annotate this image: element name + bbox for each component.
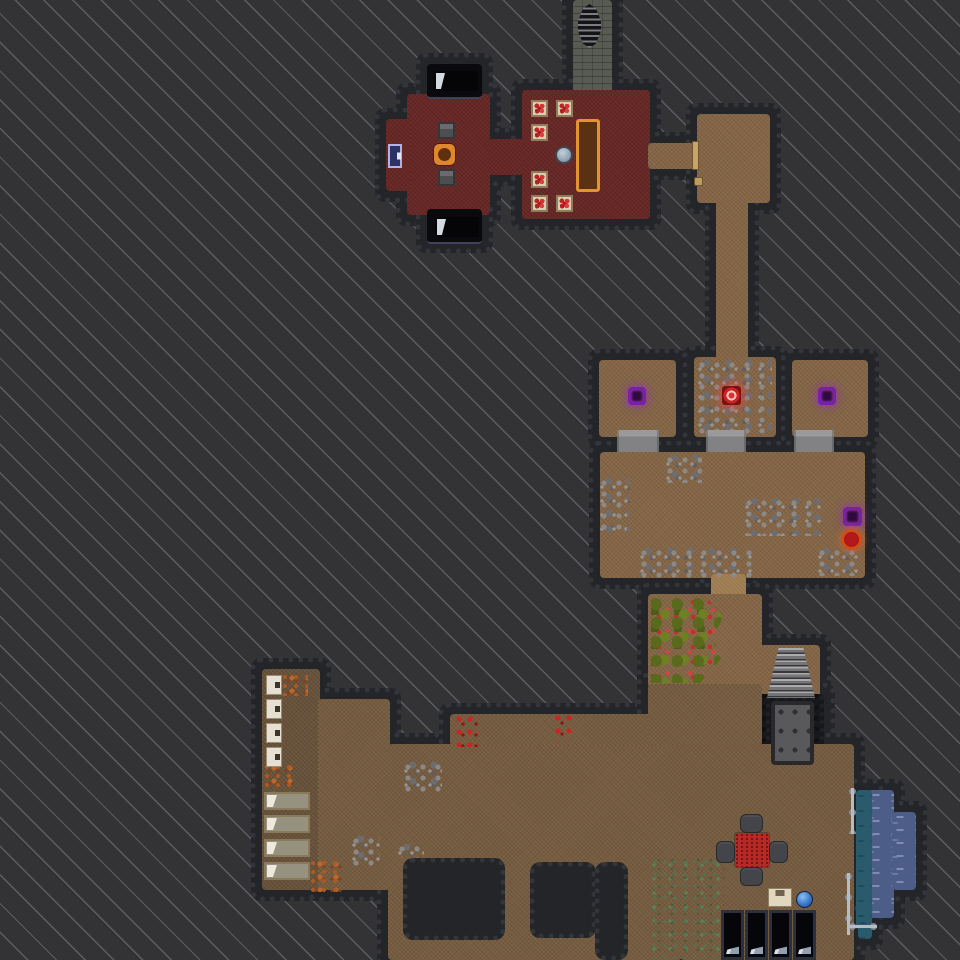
dining-table-4[interactable] — [531, 171, 548, 188]
white-chest-2[interactable] — [266, 699, 282, 719]
dining-table-3[interactable] — [531, 124, 548, 141]
purple-rune-west[interactable] — [628, 387, 646, 405]
dining-table-5[interactable] — [531, 195, 548, 212]
dungeon-map — [0, 0, 960, 960]
railing-foot — [849, 923, 877, 930]
dorm-bed-2[interactable] — [264, 815, 310, 833]
display-case-3[interactable] — [769, 910, 792, 960]
white-chest-4[interactable] — [266, 747, 282, 767]
tavern-bed-north[interactable] — [434, 71, 478, 91]
pool-grate[interactable] — [771, 701, 814, 765]
items-layer — [0, 0, 960, 960]
hall-red-orb[interactable] — [841, 529, 862, 550]
tavern-chair-south[interactable] — [438, 169, 455, 186]
supply-crate[interactable] — [768, 888, 792, 907]
ramp-middle — [706, 430, 746, 452]
cauldron[interactable] — [555, 146, 573, 164]
white-chest-3[interactable] — [266, 723, 282, 743]
feast-table[interactable] — [735, 833, 769, 867]
feast-chair-west[interactable] — [716, 841, 735, 863]
tavern-door-west[interactable] — [388, 144, 402, 168]
feast-chair-east[interactable] — [769, 841, 788, 863]
feast-chair-south[interactable] — [740, 867, 763, 886]
dorm-bed-3[interactable] — [264, 839, 310, 857]
dorm-bed-1[interactable] — [264, 792, 310, 810]
ramp-west — [617, 430, 659, 452]
dining-table-1[interactable] — [531, 100, 548, 117]
white-chest-1[interactable] — [266, 675, 282, 695]
display-case-4[interactable] — [793, 910, 816, 960]
dining-table-2[interactable] — [556, 100, 573, 117]
tavern-chair-north[interactable] — [438, 122, 455, 139]
tavern-bed-south[interactable] — [435, 217, 479, 237]
passage-door-east[interactable] — [692, 141, 699, 170]
dining-table-6[interactable] — [556, 195, 573, 212]
hall-purple-rune[interactable] — [843, 507, 862, 526]
purple-rune-east[interactable] — [818, 387, 836, 405]
wall-lever[interactable] — [694, 177, 703, 186]
stone-stairs[interactable] — [767, 648, 815, 698]
display-case-2[interactable] — [745, 910, 768, 960]
dorm-bed-4[interactable] — [264, 862, 310, 880]
railing-upper — [849, 788, 856, 834]
feast-chair-north[interactable] — [740, 814, 763, 833]
ladder-up[interactable] — [578, 4, 601, 48]
banquet-table[interactable] — [576, 119, 600, 192]
display-case-1[interactable] — [721, 910, 744, 960]
red-rune-middle[interactable] — [722, 386, 741, 405]
ramp-east — [794, 430, 834, 452]
tavern-round-table[interactable] — [434, 144, 455, 165]
blue-orb[interactable] — [796, 891, 813, 908]
